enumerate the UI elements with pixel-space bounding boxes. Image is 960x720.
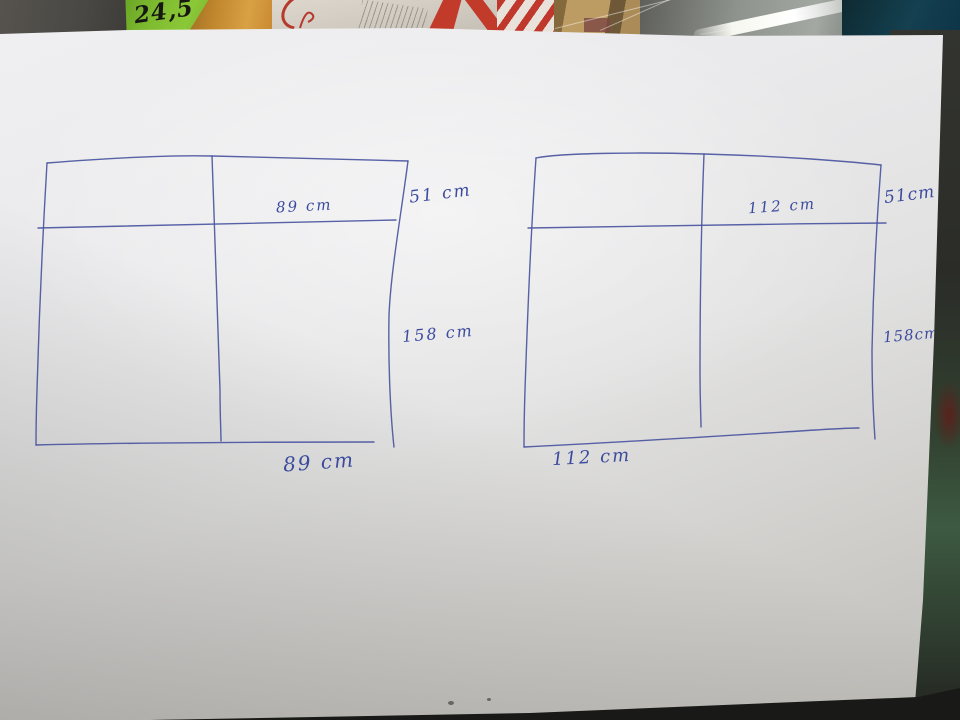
right-sketch-bottom-width-label: 112 cm xyxy=(552,445,632,470)
right-wardrobe-sketch xyxy=(524,153,886,447)
right-sketch-bottom-edge xyxy=(524,428,859,447)
left-sketch-top-width-label: 89 cm xyxy=(276,196,333,217)
left-sketch-left-edge xyxy=(36,163,47,445)
right-sketch-top-band-line xyxy=(528,223,886,228)
left-sketch-bottom-edge xyxy=(36,442,374,445)
left-sketch-center-divider xyxy=(212,156,221,441)
pen-sketch-lines xyxy=(0,0,960,720)
right-sketch-top-edge xyxy=(536,153,881,165)
left-sketch-top-band-line xyxy=(38,220,396,228)
dark-red-reflection-blob xyxy=(934,380,960,450)
left-sketch-right-edge xyxy=(389,161,408,447)
left-sketch-bottom-width-label: 89 cm xyxy=(282,448,355,477)
right-sketch-left-edge xyxy=(524,158,536,447)
left-wardrobe-sketch xyxy=(36,156,408,447)
photo-of-hand-drawn-measurement-sketch: 24,5 xyxy=(0,0,960,720)
right-sketch-center-divider xyxy=(700,154,704,427)
right-sketch-right-edge xyxy=(872,165,881,439)
white-paper-sheet: 89 cm 51 cm 158 cm 89 cm 112 cm 51cm 158… xyxy=(0,0,960,720)
price-tag-handwritten-price: 24,5 xyxy=(132,0,195,29)
left-sketch-top-edge xyxy=(47,156,408,163)
